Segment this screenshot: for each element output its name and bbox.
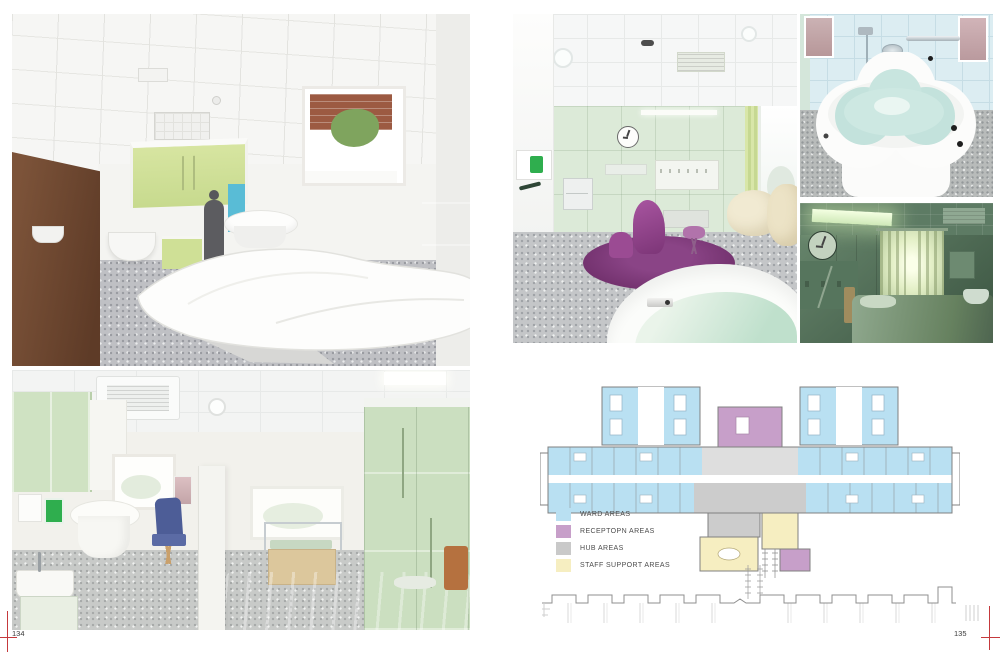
- photo2-heater-grille: [663, 210, 709, 228]
- photo1-bassinet-pad: [270, 540, 332, 549]
- legend-swatch-hub: [556, 542, 571, 555]
- photo2-glovebox-green: [530, 156, 543, 173]
- wardrobe-top-band: [364, 398, 470, 407]
- photo2-left-wall: [513, 14, 554, 260]
- photo3-grab-bar: [906, 36, 960, 41]
- photo2-birth-stool: [609, 232, 633, 258]
- curtain-folds: [880, 231, 906, 305]
- elevation-left-mark: [542, 603, 550, 617]
- legend-label: RECEPTOPN AREAS: [580, 528, 655, 535]
- render-window-sill: [305, 171, 397, 183]
- crop-mark-right-horizontal: [981, 637, 1000, 638]
- photo1-round-light: [208, 398, 226, 416]
- render-small-vent: [138, 68, 168, 82]
- photo4-window-curtains: [880, 231, 944, 305]
- book-spread: WARD AREAS RECEPTOPN AREAS HUB AREAS STA…: [0, 0, 1000, 652]
- render-window: [302, 86, 406, 186]
- photo2-round-light: [553, 48, 573, 68]
- photo2-ceiling-vent-dark: [641, 40, 654, 46]
- cabinet-handle: [182, 156, 184, 190]
- photo-birthing-pool: [800, 14, 993, 197]
- photo1-pillow: [394, 576, 436, 589]
- window-foliage: [121, 475, 161, 499]
- trolley-shelf: [566, 193, 588, 194]
- photo-ward-room: [12, 370, 470, 630]
- photo4-pillow: [860, 295, 896, 308]
- curtain-folds: [918, 231, 944, 305]
- photo4-clock: [808, 231, 837, 260]
- photo2-shelf: [605, 164, 647, 175]
- cabinet-handle: [193, 156, 195, 190]
- crop-mark-right-vertical: [989, 606, 990, 650]
- render-window-tree: [331, 109, 379, 147]
- photo2-clock: [617, 126, 639, 148]
- legend-label: HUB AREAS: [580, 545, 624, 552]
- legend-item-hub: HUB AREAS: [556, 542, 726, 555]
- photo2-beanbag: [767, 184, 797, 246]
- elevation-roofline: [542, 587, 956, 603]
- photo1-pool-base: [78, 516, 130, 558]
- render-maternity-room: [12, 14, 470, 366]
- photo2-ceiling-grille: [677, 52, 725, 72]
- wardrobe-handle: [402, 428, 404, 498]
- photo1-chair-seat: [152, 534, 186, 546]
- handle-knob: [665, 300, 670, 305]
- legend-swatch-ward: [556, 508, 571, 521]
- render-ensuite-sink: [32, 226, 64, 243]
- legend-item-ward: WARD AREAS: [556, 508, 726, 521]
- photo4-service-panel: [949, 251, 975, 279]
- photo2-bedhead-unit: [655, 160, 719, 190]
- photo2-stool-legs: [683, 238, 705, 254]
- folio-left: 134: [12, 629, 25, 638]
- crop-mark-left-vertical: [7, 611, 8, 652]
- photo3-shower-head: [858, 27, 873, 35]
- photo4-ceiling-grille: [943, 208, 985, 224]
- legend-item-reception: RECEPTOPN AREAS: [556, 525, 726, 538]
- legend-label: WARD AREAS: [580, 511, 630, 518]
- photo2-wall-light: [641, 110, 717, 115]
- photo2-round-light: [741, 26, 757, 42]
- photo1-upper-cabinets-green: [12, 392, 92, 492]
- photo1-partition: [198, 466, 225, 630]
- curtain-rail: [876, 228, 948, 231]
- photo1-tap: [38, 552, 41, 572]
- render-entry-door: [12, 152, 100, 366]
- photo-bedroom-night: [800, 203, 993, 343]
- photo1-headboard: [444, 546, 468, 590]
- render-bed: [128, 226, 470, 366]
- elevation-right-hatch: [966, 605, 978, 621]
- elevation-columns: [568, 603, 935, 623]
- legend-swatch-reception: [556, 525, 571, 538]
- render-smoke-detector: [212, 96, 221, 105]
- photo2-pool-handle: [647, 298, 673, 307]
- photo1-light-panel: [384, 372, 446, 385]
- render-person-head: [209, 190, 219, 200]
- folio-right: 135: [954, 629, 967, 638]
- photo1-dispenser-paper: [18, 494, 42, 522]
- photo4-sink: [963, 289, 989, 304]
- photo-birthing-room: [513, 14, 797, 343]
- photo3-pool: [804, 52, 989, 197]
- elevation-drawing: [538, 565, 990, 635]
- photo2-trolley: [563, 178, 593, 210]
- render-ac-vent: [154, 112, 210, 140]
- photo1-sink: [16, 570, 74, 598]
- photo1-sanitizer-green: [44, 498, 64, 524]
- photo1-sink-cabinet: [20, 596, 78, 630]
- elevation-center-link: [745, 565, 763, 599]
- photo1-chair-legs: [152, 546, 186, 564]
